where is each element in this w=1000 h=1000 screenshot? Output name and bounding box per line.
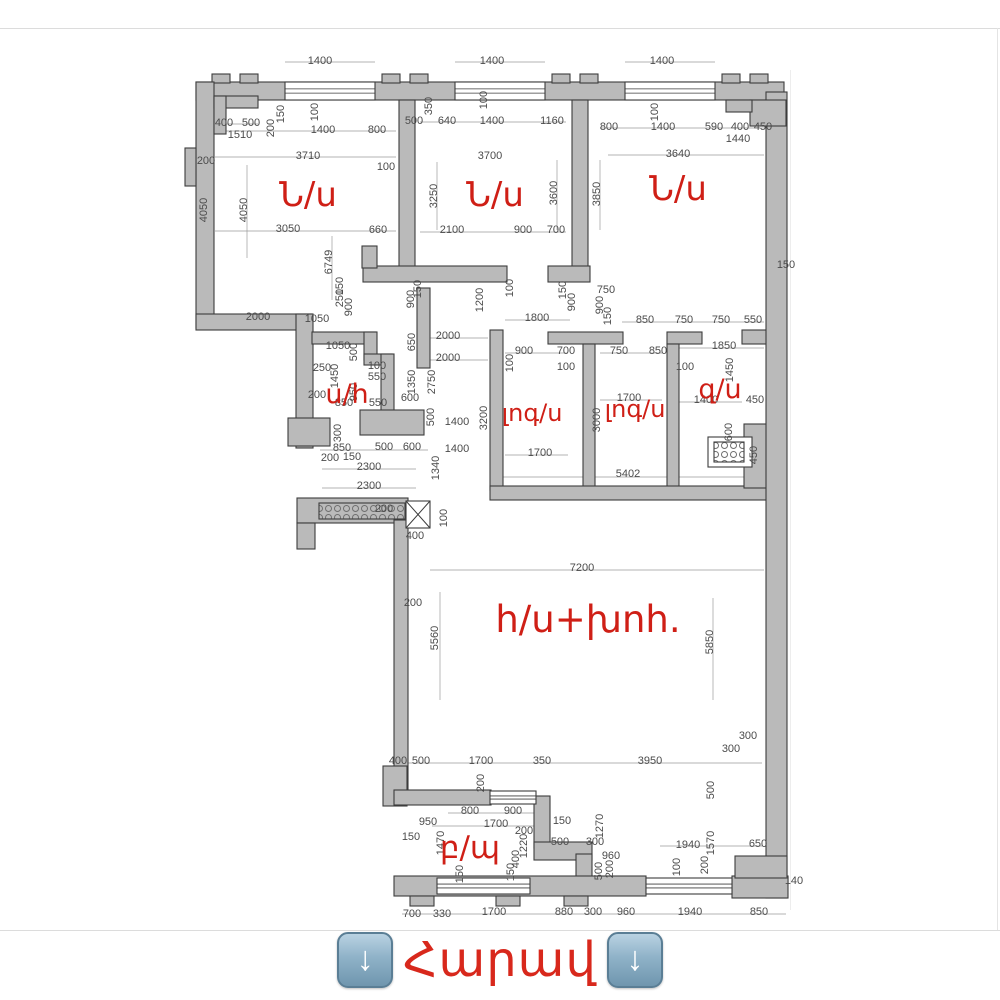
dimension-label: 150 xyxy=(454,865,466,883)
dimension-label: 330 xyxy=(433,908,451,920)
dimension-label: 7200 xyxy=(570,562,594,574)
dimension-label: 700 xyxy=(547,224,565,236)
dimension-label: 800 xyxy=(600,121,618,133)
down-arrow-emoji-left: ↓ xyxy=(337,932,393,988)
dimension-label: 1940 xyxy=(678,906,702,918)
dimension-label: 850 xyxy=(649,345,667,357)
dimension-label: 900 xyxy=(514,224,532,236)
dimension-label: 2300 xyxy=(357,480,381,492)
wall-segment xyxy=(185,148,196,186)
dimension-label: 150 xyxy=(505,863,517,881)
dimension-label: 500 xyxy=(425,408,437,426)
dimension-label: 3850 xyxy=(591,182,603,206)
dimension-label: 3600 xyxy=(548,181,560,205)
dimension-label: 900 xyxy=(504,805,522,817)
dimension-label: 350 xyxy=(423,97,435,115)
down-arrow-glyph: ↓ xyxy=(357,942,374,976)
dimension-label: 3950 xyxy=(638,755,662,767)
dimension-label: 500 xyxy=(242,117,260,129)
window xyxy=(285,82,375,100)
wall-segment xyxy=(548,266,590,282)
down-arrow-emoji-right: ↓ xyxy=(607,932,663,988)
room-label: հ/ս+խոհ. xyxy=(495,598,680,641)
dimension-label: 5402 xyxy=(616,468,640,480)
wall-segment xyxy=(667,332,702,344)
dimension-label: 1400 xyxy=(445,416,469,428)
window xyxy=(646,878,732,894)
room-label: ս/հ xyxy=(325,379,368,410)
dimension-label: 1700 xyxy=(528,447,552,459)
wall-segment xyxy=(490,486,786,500)
wall-segment xyxy=(360,410,424,435)
dimension-label: 300 xyxy=(332,424,344,442)
dimension-label: 200 xyxy=(699,856,711,874)
dimension-label: 850 xyxy=(636,314,654,326)
wall-segment xyxy=(212,74,230,83)
dimension-label: 1570 xyxy=(705,831,717,855)
wall-segment xyxy=(552,74,570,83)
dimension-label: 1400 xyxy=(650,55,674,67)
dimension-label: 850 xyxy=(750,906,768,918)
dimension-label: 2000 xyxy=(436,352,460,364)
south-caption-text: Հարավ xyxy=(397,932,603,988)
south-caption: ↓ Հարավ ↓ xyxy=(0,932,1000,988)
dimension-label: 500 xyxy=(348,343,360,361)
room-label: լոգ/ս xyxy=(605,395,666,423)
dimension-label: 200 xyxy=(321,452,339,464)
dimension-label: 550 xyxy=(368,371,386,383)
dimension-label: 100 xyxy=(478,91,490,109)
floor-plan-drawing: 1400140014004005001510150200100140080037… xyxy=(0,0,1000,1000)
dimension-label: 300 xyxy=(584,906,602,918)
dimension-label: 5850 xyxy=(704,630,716,654)
room-label: Ն/ս xyxy=(649,169,707,209)
dimension-label: 1400 xyxy=(445,443,469,455)
dimension-label: 1050 xyxy=(305,313,329,325)
dimension-label: 1400 xyxy=(311,124,335,136)
dimension-label: 200 xyxy=(197,155,215,167)
dimension-label: 300 xyxy=(739,730,757,742)
dimension-label: 3640 xyxy=(666,148,690,160)
dimension-label: 400 xyxy=(215,117,233,129)
dimension-label: 1800 xyxy=(525,312,549,324)
dimension-label: 100 xyxy=(676,361,694,373)
window xyxy=(490,791,536,804)
dimension-label: 880 xyxy=(555,906,573,918)
dimension-label: 500 xyxy=(705,781,717,799)
dimension-label: 1400 xyxy=(480,55,504,67)
dimension-label: 500 xyxy=(412,755,430,767)
dimension-label: 1440 xyxy=(726,133,750,145)
dimension-label: 1700 xyxy=(482,906,506,918)
dimension-label: 100 xyxy=(504,279,516,297)
dimension-label: 150 xyxy=(412,280,424,298)
wall-segment xyxy=(548,332,623,344)
window xyxy=(455,82,545,100)
dimension-label: 900 xyxy=(515,345,533,357)
dimension-label: 150 xyxy=(553,815,571,827)
dimension-label: 5560 xyxy=(429,626,441,650)
down-arrow-glyph: ↓ xyxy=(626,942,643,976)
dimension-label: 3250 xyxy=(428,184,440,208)
dimension-label: 400 xyxy=(731,121,749,133)
wall-segment xyxy=(580,74,598,83)
dimension-label: 1700 xyxy=(469,755,493,767)
dimension-label: 1340 xyxy=(430,456,442,480)
wall-segment xyxy=(382,74,400,83)
room-label: զ/ս xyxy=(698,374,741,405)
wall-segment xyxy=(417,288,430,368)
dimension-label: 3700 xyxy=(478,150,502,162)
dimension-label: 100 xyxy=(649,103,661,121)
room-label: Ն/ս xyxy=(466,175,524,215)
dimension-label: 150 xyxy=(602,307,614,325)
dimension-label: 1700 xyxy=(484,818,508,830)
vent-box-hatch xyxy=(714,442,744,462)
dimension-label: 900 xyxy=(566,293,578,311)
dimension-label: 200 xyxy=(308,389,326,401)
dimension-label: 1200 xyxy=(474,288,486,312)
dimension-label: 500 xyxy=(551,836,569,848)
dimension-label: 3710 xyxy=(296,150,320,162)
dimension-label: 750 xyxy=(712,314,730,326)
dimension-label: 600 xyxy=(723,423,735,441)
dimension-label: 450 xyxy=(748,446,760,464)
dimension-label: 1510 xyxy=(228,129,252,141)
dimension-label: 750 xyxy=(597,284,615,296)
dimension-label: 2300 xyxy=(357,461,381,473)
wall-segment xyxy=(363,266,507,282)
dimension-label: 500 xyxy=(375,441,393,453)
dimension-label: 700 xyxy=(403,908,421,920)
dimension-label: 550 xyxy=(744,314,762,326)
dimension-label: 1400 xyxy=(308,55,332,67)
dimension-label: 650 xyxy=(749,838,767,850)
dimension-label: 550 xyxy=(369,397,387,409)
wall-segment xyxy=(410,896,434,906)
dimension-label: 200 xyxy=(475,774,487,792)
wall-segment xyxy=(726,100,752,112)
dimension-label: 1160 xyxy=(540,115,564,127)
dimension-label: 3000 xyxy=(591,408,603,432)
wall-segment xyxy=(297,523,315,549)
dimension-label: 600 xyxy=(403,441,421,453)
dimension-label: 200 xyxy=(375,503,393,515)
dimension-label: 800 xyxy=(461,805,479,817)
dimension-label: 100 xyxy=(377,161,395,173)
wall-segment xyxy=(732,876,788,898)
wall-segment xyxy=(722,74,740,83)
wall-segment xyxy=(410,74,428,83)
dimension-label: 1350 xyxy=(406,370,418,394)
dimension-label: 1400 xyxy=(480,115,504,127)
dimension-label: 1270 xyxy=(594,814,606,838)
dimension-label: 4050 xyxy=(238,198,250,222)
dimension-label: 2000 xyxy=(246,311,270,323)
dimension-label: 200 xyxy=(265,119,277,137)
dimension-label: 4050 xyxy=(198,198,210,222)
dimension-label: 500 xyxy=(405,115,423,127)
dimension-label: 1940 xyxy=(676,839,700,851)
dimension-label: 950 xyxy=(419,816,437,828)
dimension-label: 150 xyxy=(777,259,795,271)
dimension-label: 900 xyxy=(343,298,355,316)
dimension-label: 650 xyxy=(406,333,418,351)
dimension-label: 450 xyxy=(754,121,772,133)
dimension-label: 400 xyxy=(406,530,424,542)
dimension-label: 590 xyxy=(705,121,723,133)
dimension-label: 1850 xyxy=(712,340,736,352)
wall-segment xyxy=(564,896,588,906)
wall-segment xyxy=(572,100,588,268)
dimension-label: 660 xyxy=(369,224,387,236)
dimension-label: 450 xyxy=(746,394,764,406)
dimension-label: 200 xyxy=(604,860,616,878)
dimension-label: 1400 xyxy=(651,121,675,133)
dimension-label: 100 xyxy=(671,858,683,876)
wall-segment xyxy=(766,92,787,898)
dimension-label: 640 xyxy=(438,115,456,127)
wall-segment xyxy=(288,418,330,446)
wall-segment xyxy=(362,246,377,268)
room-label: լոգ/ս xyxy=(502,399,563,427)
dimension-label: 100 xyxy=(557,361,575,373)
dimension-label: 1050 xyxy=(326,340,350,352)
dimension-label: 960 xyxy=(617,906,635,918)
dimension-label: 140 xyxy=(785,875,803,887)
floor-plan-page: 1400140014004005001510150200100140080037… xyxy=(0,0,1000,1000)
dimension-label: 700 xyxy=(557,345,575,357)
dimension-label: 6749 xyxy=(323,250,335,274)
dimension-label: 2000 xyxy=(436,330,460,342)
dimension-label: 200 xyxy=(404,597,422,609)
dimension-label: 100 xyxy=(438,509,450,527)
dimension-label: 400 xyxy=(389,755,407,767)
dimension-label: 100 xyxy=(309,103,321,121)
window xyxy=(625,82,715,100)
dimension-label: 300 xyxy=(722,743,740,755)
wall-segment xyxy=(750,74,768,83)
wall-segment xyxy=(240,74,258,83)
dimension-label: 3200 xyxy=(478,406,490,430)
dimension-label: 800 xyxy=(368,124,386,136)
wall-segment xyxy=(735,856,787,878)
dimension-label: 2100 xyxy=(440,224,464,236)
room-label: Ն/ս xyxy=(279,175,337,215)
dimension-label: 350 xyxy=(533,755,551,767)
dimension-label: 150 xyxy=(402,831,420,843)
room-label: բ/պ xyxy=(440,830,500,866)
dimension-label: 750 xyxy=(675,314,693,326)
wall-segment xyxy=(496,896,520,906)
dimension-label: 750 xyxy=(610,345,628,357)
dimension-label: 2750 xyxy=(426,370,438,394)
dimension-label: 3050 xyxy=(276,223,300,235)
